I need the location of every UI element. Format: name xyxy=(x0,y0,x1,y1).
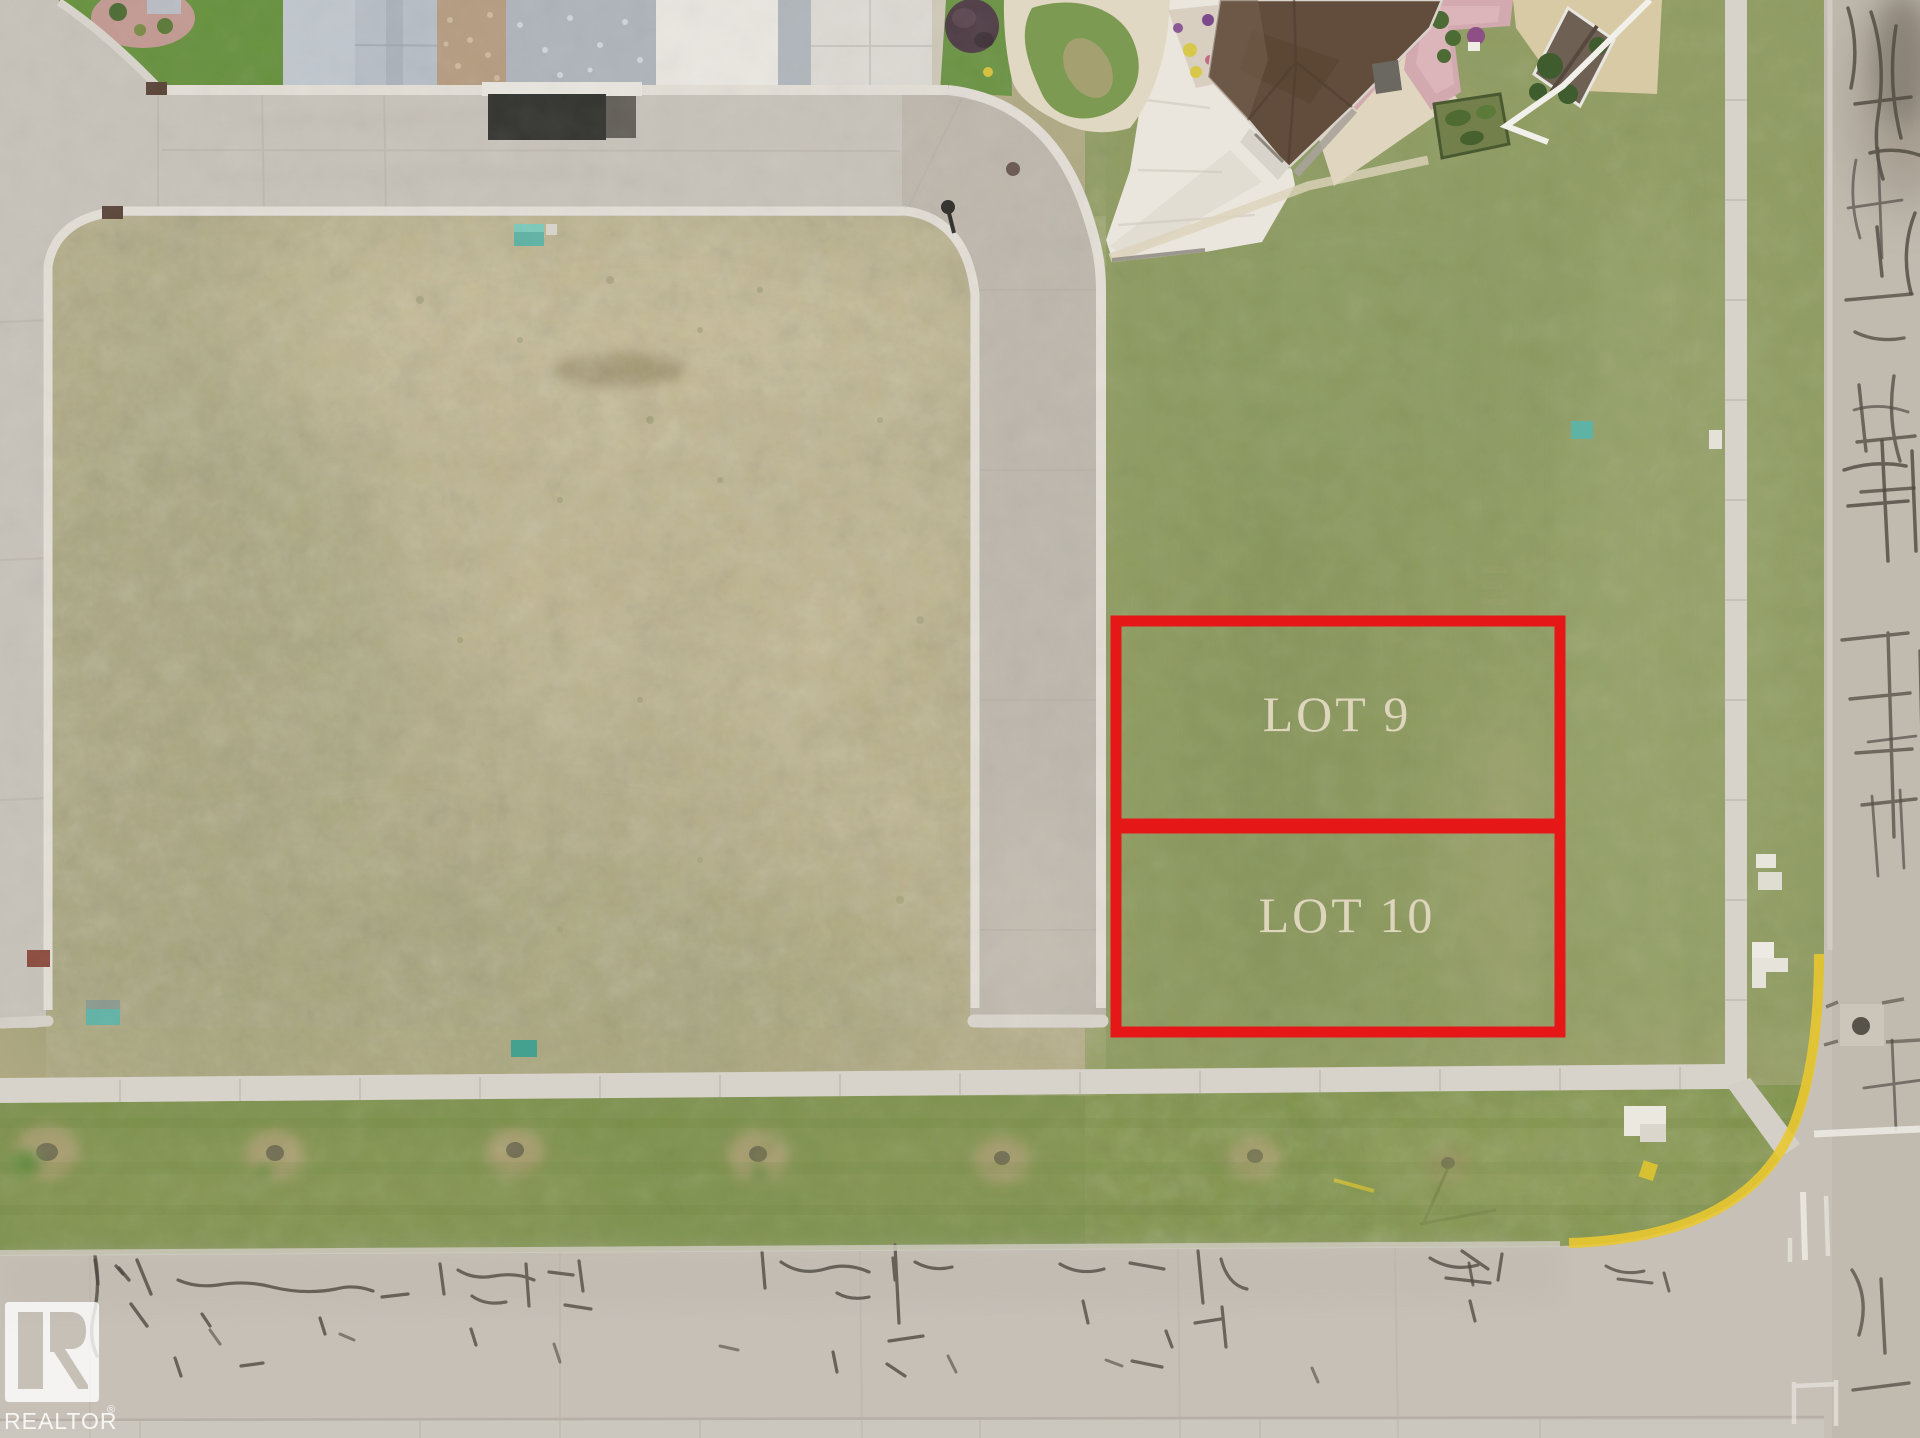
svg-text:REALTOR: REALTOR xyxy=(4,1408,118,1434)
svg-text:LOT 10: LOT 10 xyxy=(1259,887,1436,943)
svg-text:LOT 9: LOT 9 xyxy=(1263,686,1412,742)
svg-text:®: ® xyxy=(107,1404,115,1416)
